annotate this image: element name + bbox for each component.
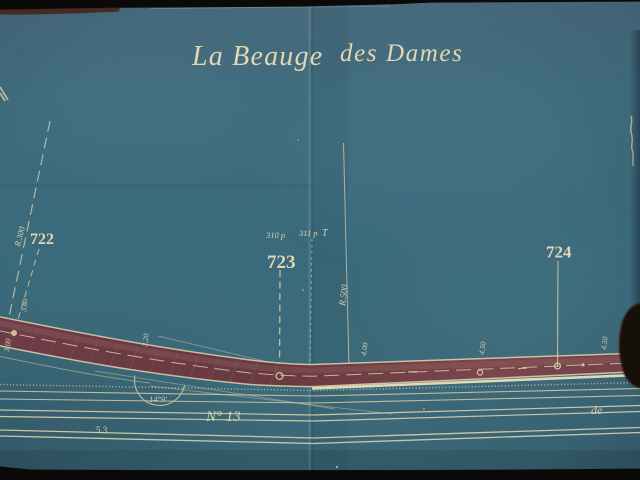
svg-text:4.50: 4.50 [599, 336, 610, 350]
svg-text:4.00: 4.00 [359, 342, 370, 356]
svg-text:311 p: 311 p [298, 228, 318, 238]
svg-text:722: 722 [30, 231, 54, 248]
svg-text:310 p: 310 p [265, 230, 285, 240]
svg-text:723: 723 [267, 252, 296, 273]
svg-text:4.50: 4.50 [477, 341, 488, 355]
svg-text:5.3: 5.3 [96, 425, 108, 435]
svg-text:La Beauge: La Beauge [191, 41, 323, 72]
svg-text:des Dames: des Dames [340, 40, 463, 67]
svg-text:N° 13: N° 13 [205, 409, 241, 425]
svg-text:14°9': 14°9' [149, 394, 167, 404]
svg-text:de: de [591, 403, 603, 417]
svg-text:724: 724 [546, 243, 572, 262]
